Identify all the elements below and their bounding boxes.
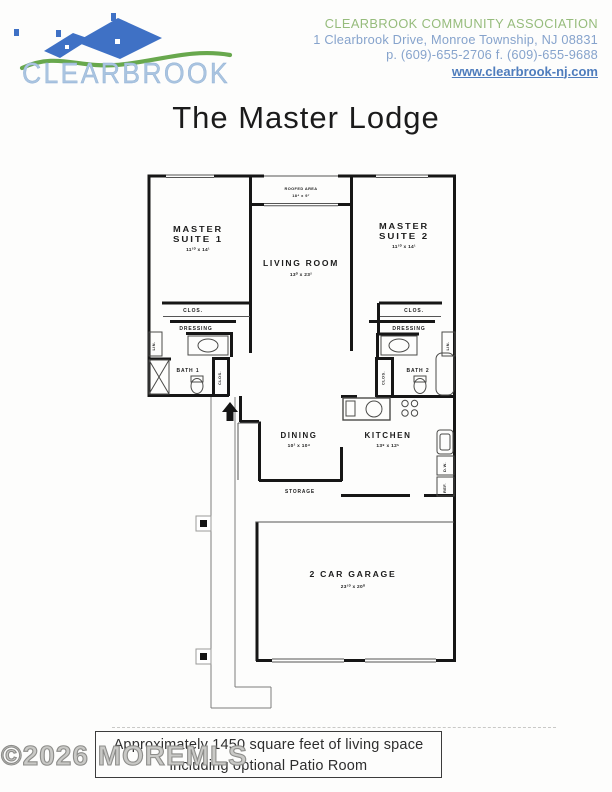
garage-label: 2 CAR GARAGE [310, 570, 397, 579]
kitchen-dims: 13⁸ x 12⁵ [376, 443, 399, 449]
svg-text:SUITE 1: SUITE 1 [173, 235, 223, 244]
bath-2-label: BATH 2 [406, 368, 429, 374]
linen-label-left: LIN. [151, 342, 156, 351]
bath-1-label: BATH 1 [176, 368, 199, 374]
clearbrook-logo: CLEARBROOK [14, 6, 238, 94]
roofed-area-dims: 18⁴ x 9⁷ [292, 193, 310, 198]
closet-label-left: CLOS. [183, 308, 203, 314]
roofed-area-label: ROOFED AREA [284, 186, 317, 191]
living-room-label: LIVING ROOM [263, 259, 339, 268]
floorplan: ROOFED AREA 18⁴ x 9⁷ MASTER SUITE 1 11¹⁰… [0, 150, 612, 735]
address: 1 Clearbrook Drive, Monroe Township, NJ … [313, 32, 598, 48]
storage-label: STORAGE [285, 489, 315, 495]
property-line [112, 727, 556, 728]
closet-vertical-right: CLOS. [381, 371, 386, 385]
entry-arrow-icon [222, 402, 238, 421]
linen-label-right: LIN. [445, 342, 450, 351]
contact-info: CLEARBROOK COMMUNITY ASSOCIATION 1 Clear… [313, 16, 598, 79]
org-name: CLEARBROOK COMMUNITY ASSOCIATION [313, 16, 598, 32]
bath-kitchen-fixtures [149, 332, 455, 496]
closet-label-right: CLOS. [404, 308, 424, 314]
flyer-page: CLEARBROOK CLEARBROOK COMMUNITY ASSOCIAT… [0, 0, 612, 792]
dining-label: DINING [281, 431, 318, 440]
master-suite-2-dims: 11¹⁰ x 14¹ [392, 244, 416, 250]
fridge-label: REF. [442, 483, 447, 493]
kitchen-label: KITCHEN [365, 431, 412, 440]
dishwasher-label: D.W. [442, 462, 447, 472]
website-link[interactable]: www.clearbrook-nj.com [452, 64, 598, 80]
page-title: The Master Lodge [0, 100, 612, 136]
dressing-label-right: DRESSING [392, 326, 425, 332]
dressing-label-left: DRESSING [179, 326, 212, 332]
logo-houses-icon: CLEARBROOK [14, 6, 238, 94]
master-suite-2-label: MASTER [379, 222, 429, 231]
mls-watermark: ©2026 MOREMLS [1, 740, 248, 772]
dining-dims: 10² x 10⁴ [288, 443, 311, 449]
phone-fax: p. (609)-655-2706 f. (609)-655-9688 [313, 47, 598, 63]
svg-text:SUITE 2: SUITE 2 [379, 232, 429, 241]
living-room-dims: 13⁰ x 23² [290, 272, 312, 278]
walkway-posts [196, 516, 211, 664]
closet-vertical-left: CLOS. [217, 371, 222, 385]
garage-dims: 23¹⁰ x 20⁰ [341, 584, 365, 590]
master-suite-1-dims: 11¹⁰ x 14¹ [186, 247, 210, 253]
master-suite-1-label: MASTER [173, 225, 223, 234]
logo-text: CLEARBROOK [22, 58, 230, 90]
